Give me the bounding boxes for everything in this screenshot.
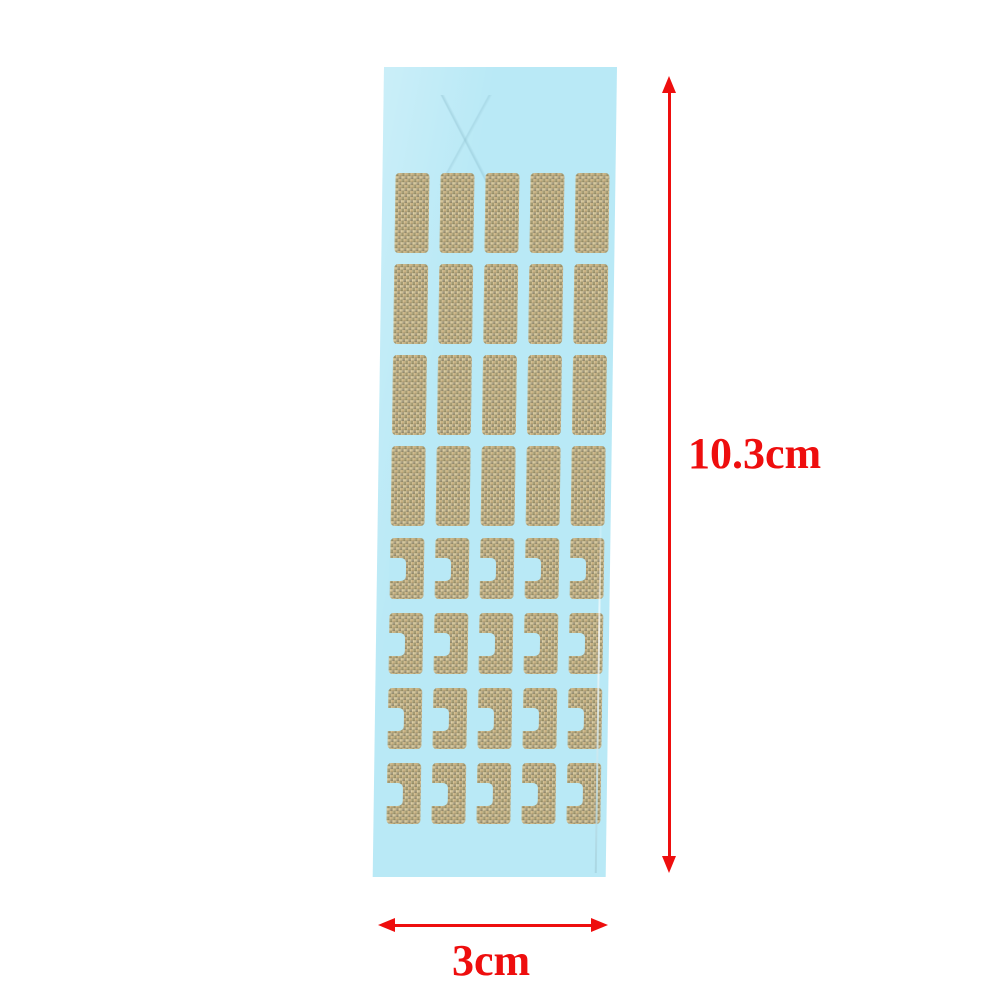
sticker-row: [393, 264, 608, 344]
sticker-patch: [484, 173, 519, 253]
sticker-row: [390, 538, 605, 599]
sticker-notch: [567, 708, 584, 731]
sticker-patch-notched: [431, 763, 466, 824]
arrow-down-icon: [662, 856, 676, 873]
sticker-patch-notched: [522, 688, 557, 749]
sticker-patch: [482, 355, 517, 435]
sticker-notch: [478, 633, 495, 656]
sticker-patch-notched: [524, 613, 559, 674]
sticker-row: [394, 173, 609, 253]
product-photo: 10.3cm 3cm: [0, 0, 1002, 1002]
sticker-notch: [389, 558, 406, 581]
sticker-patch: [438, 264, 473, 344]
sticker-patch-notched: [476, 763, 511, 824]
sticker-patch-notched: [525, 538, 560, 599]
sticker-patch: [391, 446, 426, 526]
sticker-patch: [574, 173, 609, 253]
sticker-patch-notched: [432, 688, 467, 749]
sticker-patch: [527, 355, 562, 435]
sticker-patch-notched: [521, 763, 556, 824]
sticker-patch: [436, 446, 471, 526]
sticker-notch: [388, 633, 405, 656]
sticker-row: [389, 613, 604, 674]
sticker-notch: [386, 783, 403, 806]
sticker-patch-notched: [477, 688, 512, 749]
sticker-notch: [568, 633, 585, 656]
sticker-notch: [524, 558, 541, 581]
sticker-patch: [437, 355, 472, 435]
width-dimension-label: 3cm: [452, 939, 530, 983]
sticker-notch: [522, 708, 539, 731]
sticker-row: [386, 763, 601, 824]
sticker-patch: [394, 173, 429, 253]
sticker-patch: [439, 173, 474, 253]
sticker-notch: [479, 558, 496, 581]
sticker-sheet: [373, 67, 617, 877]
sticker-patch-notched: [479, 613, 514, 674]
height-dimension-arrow: [660, 76, 678, 873]
sticker-grid: [373, 67, 617, 877]
sticker-notch: [432, 708, 449, 731]
sticker-notch: [477, 708, 494, 731]
sticker-row: [387, 688, 602, 749]
sticker-notch: [569, 558, 586, 581]
sticker-patch-notched: [480, 538, 515, 599]
sticker-notch: [434, 558, 451, 581]
sticker-notch: [521, 783, 538, 806]
sticker-notch: [523, 633, 540, 656]
sticker-patch-notched: [390, 538, 425, 599]
sticker-notch: [566, 783, 583, 806]
sticker-patch: [392, 355, 427, 435]
sticker-patch: [481, 446, 516, 526]
arrow-shaft: [668, 87, 671, 862]
sticker-row: [391, 446, 606, 526]
height-dimension-label: 10.3cm: [688, 432, 821, 476]
sticker-notch: [431, 783, 448, 806]
sticker-patch-notched: [387, 688, 422, 749]
sticker-patch: [528, 264, 563, 344]
sticker-notch: [476, 783, 493, 806]
sticker-patch: [483, 264, 518, 344]
sticker-patch-notched: [434, 613, 469, 674]
sticker-notch: [387, 708, 404, 731]
sticker-patch: [393, 264, 428, 344]
arrow-shaft: [389, 924, 597, 927]
sticker-patch: [526, 446, 561, 526]
sticker-patch-notched: [386, 763, 421, 824]
width-dimension-arrow: [378, 916, 608, 934]
sticker-patch: [529, 173, 564, 253]
sticker-patch-notched: [435, 538, 470, 599]
sticker-patch: [573, 264, 608, 344]
sticker-patch-notched: [389, 613, 424, 674]
sticker-notch: [433, 633, 450, 656]
arrow-right-icon: [591, 918, 608, 932]
sticker-patch: [572, 355, 607, 435]
sticker-row: [392, 355, 607, 435]
